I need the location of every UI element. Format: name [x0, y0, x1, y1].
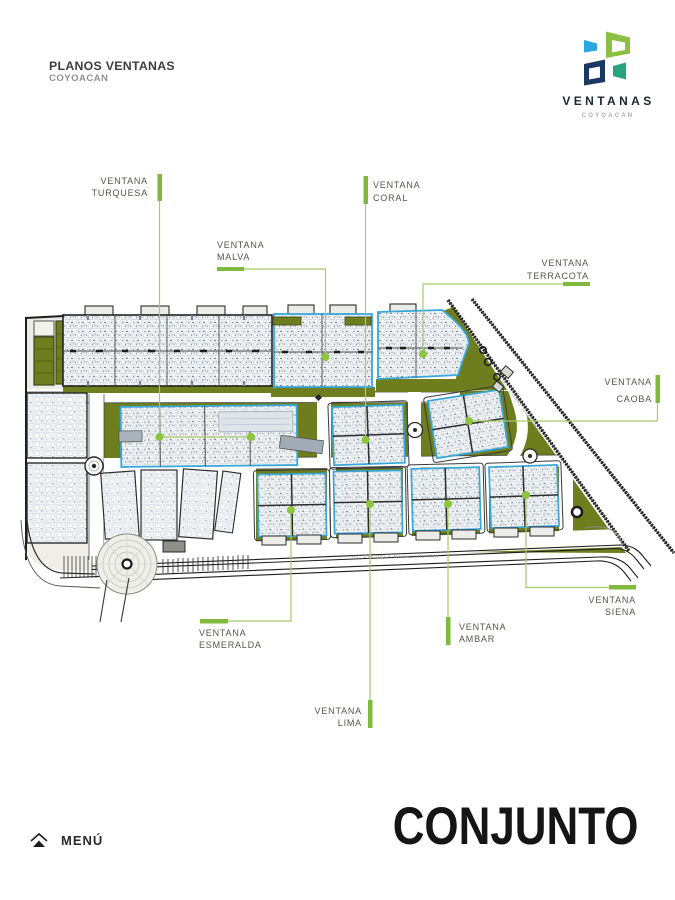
svg-text:AMBAR: AMBAR [459, 634, 495, 644]
svg-text:VENTANA: VENTANA [605, 377, 652, 387]
svg-text:VENTANA: VENTANA [101, 176, 148, 186]
svg-text:VENTANA: VENTANA [217, 240, 264, 250]
svg-text:SIENA: SIENA [605, 607, 636, 617]
svg-text:VENTANA: VENTANA [199, 628, 246, 638]
svg-text:VENTANA: VENTANA [589, 595, 636, 605]
svg-text:ESMERALDA: ESMERALDA [199, 640, 262, 650]
svg-text:VENTANA: VENTANA [373, 180, 420, 190]
svg-text:CAOBA: CAOBA [616, 394, 652, 404]
svg-text:TURQUESA: TURQUESA [92, 188, 148, 198]
svg-text:MALVA: MALVA [217, 252, 250, 262]
svg-text:VENTANA: VENTANA [459, 622, 506, 632]
svg-text:TERRACOTA: TERRACOTA [527, 271, 589, 281]
svg-text:VENTANA: VENTANA [315, 706, 362, 716]
svg-text:AV. ESCUELA NAVAL MILITAR: AV. ESCUELA NAVAL MILITAR [352, 554, 439, 559]
svg-text:LIMA: LIMA [338, 718, 362, 728]
svg-text:CORAL: CORAL [373, 193, 408, 203]
svg-text:VENTANA: VENTANA [542, 258, 589, 268]
